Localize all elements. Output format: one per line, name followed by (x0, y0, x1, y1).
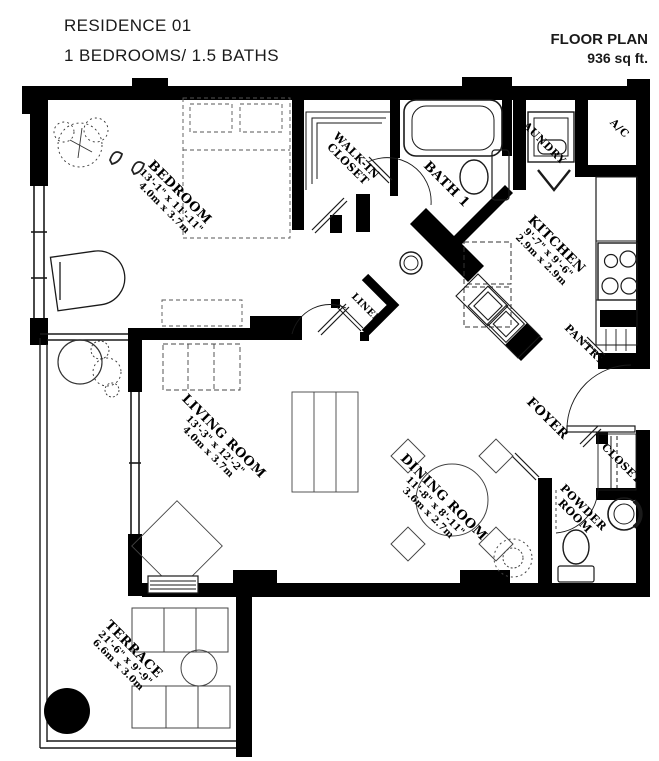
living-window (129, 392, 141, 534)
terrace-lounger (132, 608, 228, 652)
bottom-vent (148, 576, 198, 593)
laundry-door (538, 170, 570, 190)
bedroom-decor (110, 152, 144, 174)
sofa (292, 392, 358, 492)
terrace-lounger-2 (132, 686, 230, 728)
bath-door (366, 157, 431, 205)
toilet-inner (404, 256, 418, 270)
bathtub-inner (412, 106, 494, 150)
bath-sink (460, 160, 488, 194)
toilet-icon (400, 252, 422, 274)
bedroom-window (31, 186, 47, 318)
terrace-column (44, 688, 90, 734)
dresser (162, 300, 242, 326)
bedroom-chair (50, 247, 128, 310)
terrace-table (181, 650, 217, 686)
bedroom-plant (54, 118, 108, 167)
media-console (163, 344, 240, 390)
pantry-shelves (606, 329, 626, 351)
terrace-plant (58, 340, 121, 397)
floor-plan-page: RESIDENCE 01 1 BEDROOMS/ 1.5 BATHS FLOOR… (0, 0, 659, 761)
entry-door (567, 365, 635, 432)
